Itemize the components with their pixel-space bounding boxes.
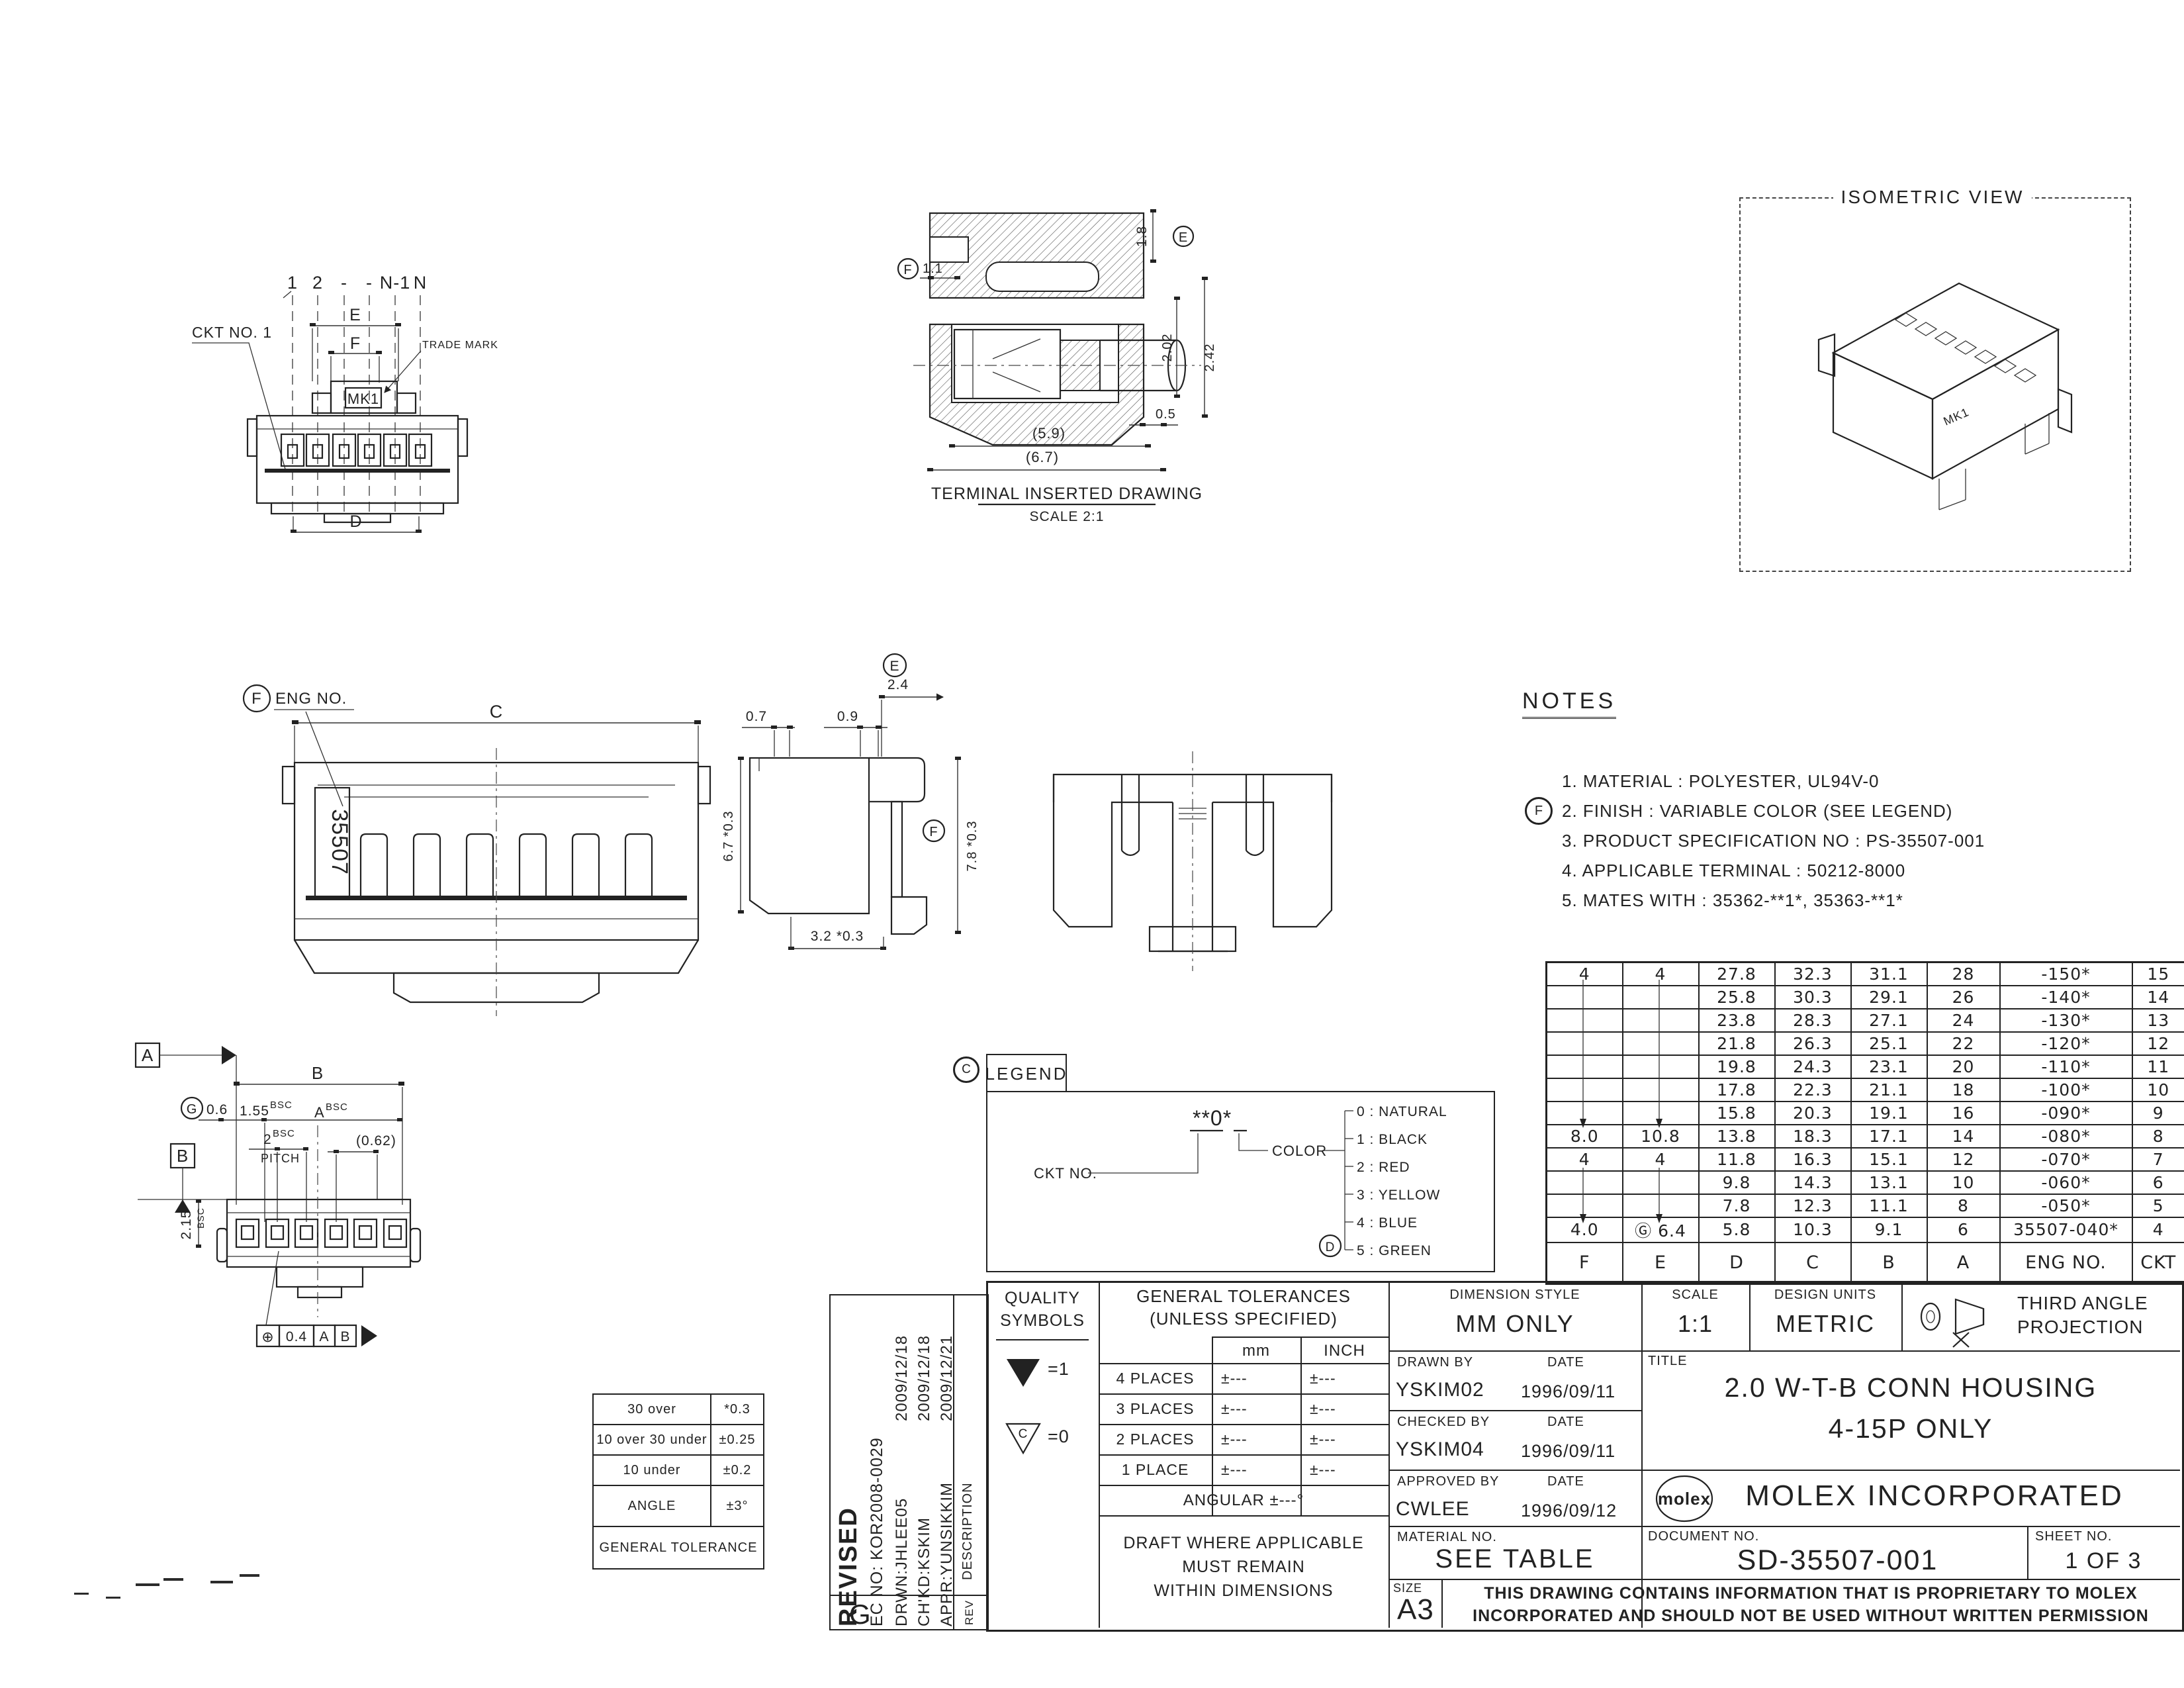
spec-cell: 16.3 (1775, 1148, 1851, 1171)
col-mm: mm (1212, 1342, 1300, 1360)
quality-value-1: =1 (1048, 1359, 1069, 1380)
bsc-label: BSC (326, 1102, 348, 1113)
spec-cell: 26.3 (1775, 1032, 1851, 1055)
dim-0-62: (0.62) (356, 1133, 396, 1149)
spec-row: 4.0Ⓖ 6.45.810.39.1635507-040*4 (1547, 1217, 2184, 1243)
legend-color-label: COLOR (1272, 1143, 1327, 1159)
projection-line2: PROJECTION (2017, 1317, 2143, 1338)
spec-cell: -060* (2000, 1171, 2132, 1194)
spec-cell (1623, 1009, 1699, 1032)
front-body (248, 416, 467, 522)
spec-cell: -150* (2000, 962, 2132, 986)
spec-cell: -100* (2000, 1078, 2132, 1102)
spec-cell (1547, 1171, 1623, 1194)
notes-block: NOTES 1. MATERIAL : POLYESTER, UL94V-0 2… (1522, 688, 2184, 914)
note-item: 5. MATES WITH : 35362-**1*, 35363-**1* (1562, 890, 1903, 911)
legend-color-item: 2 : RED (1357, 1160, 1410, 1175)
design-units-value: METRIC (1749, 1310, 1901, 1338)
spec-cell: 11 (2132, 1055, 2184, 1078)
spec-cell: 18.3 (1775, 1125, 1851, 1148)
tol-mm: ±--- (1221, 1461, 1248, 1479)
spec-cell (1623, 986, 1699, 1009)
spec-cell: 6 (2132, 1171, 2184, 1194)
col-inch: INCH (1300, 1342, 1388, 1360)
draft-note-2: MUST REMAIN (1099, 1558, 1388, 1577)
dim-b: B (312, 1063, 324, 1083)
spec-cell: -140* (2000, 986, 2132, 1009)
tol-places: 1 PLACE (1099, 1461, 1212, 1479)
spec-cell: 11.8 (1699, 1148, 1775, 1171)
spec-cell: 13 (2132, 1009, 2184, 1032)
spec-cell: 22.3 (1775, 1078, 1851, 1102)
projection-line1: THIRD ANGLE (2017, 1293, 2148, 1314)
spec-header-row: F E D C B A ENG NO. CKT (1547, 1243, 2184, 1284)
note-item: 4. APPLICABLE TERMINAL : 50212-8000 (1562, 861, 1905, 881)
spec-cell: 10 (2132, 1078, 2184, 1102)
spec-cell: 13.8 (1699, 1125, 1775, 1148)
spec-cell: 5.8 (1699, 1217, 1775, 1243)
general-tolerance-table: 30 over*0.3 10 over 30 under±0.25 10 und… (592, 1393, 764, 1570)
eng-no-label: ENG NO. (275, 690, 347, 708)
quality-line2: SYMBOLS (986, 1311, 1099, 1331)
ckt-leader (192, 343, 286, 471)
approved-date: 1996/09/12 (1521, 1501, 1617, 1521)
tol-inch: ±--- (1310, 1370, 1336, 1387)
ckt-no-label: CKT NO. 1 (192, 324, 272, 341)
document-no-value: SD-35507-001 (1648, 1544, 2027, 1577)
spec-cell: 15 (2132, 962, 2184, 986)
circuit-label: N (414, 273, 428, 293)
quality-symbol-c-triangle: C (1003, 1420, 1044, 1457)
stray-mark (163, 1578, 183, 1581)
legend-tab: LEGEND (986, 1054, 1067, 1094)
dim-3-2-03: 3.2 *0.3 (811, 929, 864, 944)
balloon-e: E (1179, 230, 1188, 245)
col-e: E (1623, 1243, 1699, 1284)
dim-1-55: 1.55 (240, 1103, 269, 1119)
dim-a: A (314, 1104, 325, 1121)
circuit-label: 2 (312, 273, 323, 293)
legend-ckt-label: CKT NO. (1034, 1165, 1097, 1182)
proprietary-line1: THIS DRAWING CONTAINS INFORMATION THAT I… (1441, 1584, 2180, 1603)
tol-places: 4 PLACES (1099, 1370, 1212, 1387)
revision-date: 2009/12/18 (893, 1335, 911, 1421)
spec-cell: 30.3 (1775, 986, 1851, 1009)
iso-mk1-label: MK1 (1941, 405, 1971, 428)
spec-cell: -070* (2000, 1148, 2132, 1171)
drawn-date: 1996/09/11 (1521, 1382, 1615, 1402)
revision-block: REVISED EC NO: KOR2008-0029 DRWN:JHLEE05… (829, 1294, 989, 1630)
date-label: DATE (1547, 1474, 1584, 1489)
spec-cell: 22 (1927, 1032, 2000, 1055)
datum-a-triangle (222, 1046, 236, 1064)
spec-cell: 20 (1927, 1055, 2000, 1078)
stray-mark (210, 1581, 233, 1583)
proprietary-line2: INCORPORATED AND SHOULD NOT BE USED WITH… (1441, 1607, 2180, 1626)
spec-cell (1547, 1102, 1623, 1125)
material-label: MATERIAL NO. (1397, 1530, 1497, 1545)
spec-cell: 10.8 (1623, 1125, 1699, 1148)
spec-cell: 4 (1623, 962, 1699, 986)
spec-cell: 14.3 (1775, 1171, 1851, 1194)
spec-cell: 8.0 (1547, 1125, 1623, 1148)
spec-row: 23.828.327.124-130*13 (1547, 1009, 2184, 1032)
spec-row: 21.826.325.122-120*12 (1547, 1032, 2184, 1055)
spec-cell: 12 (1927, 1148, 2000, 1171)
checked-date: 1996/09/11 (1521, 1441, 1615, 1462)
drawn-by-label: DRAWN BY (1397, 1355, 1473, 1370)
quality-line1: QUALITY (986, 1289, 1099, 1308)
spec-cell: 6 (1927, 1217, 2000, 1243)
note-item: 1. MATERIAL : POLYESTER, UL94V-0 (1562, 771, 1879, 792)
company-name: MOLEX INCORPORATED (1716, 1479, 2153, 1513)
dim-0-6: 0.6 (206, 1102, 228, 1117)
spec-cell: 15.1 (1851, 1148, 1927, 1171)
spec-cell: 17.1 (1851, 1125, 1927, 1148)
note-item: 3. PRODUCT SPECIFICATION NO : PS-35507-0… (1562, 831, 1985, 851)
spec-cell (1623, 1194, 1699, 1217)
pitch-label: PITCH (261, 1152, 300, 1165)
bottom-view-drawing: A B G 0.6 1.55 BSC A BSC 2 BSC PITCH (0.… (99, 1026, 715, 1364)
dim-2-42: 2.42 (1203, 344, 1217, 372)
legend-diagram: **0* CKT NO. COLOR 0 : NATURAL 1 : BLACK… (987, 1092, 1491, 1268)
dim-2-15: 2.15 (179, 1210, 194, 1240)
tol-places: 2 PLACES (1099, 1430, 1212, 1448)
terminal-scale: SCALE 2:1 (1030, 509, 1105, 524)
section-view-drawing (1049, 712, 1340, 976)
molex-logo-text: molex (1658, 1489, 1711, 1509)
spec-cell: 12.3 (1775, 1194, 1851, 1217)
approved-by-label: APPROVED BY (1397, 1474, 1499, 1489)
tol-inch: ±--- (1310, 1400, 1336, 1418)
spec-cell: 14 (2132, 986, 2184, 1009)
spec-cell: 8 (1927, 1194, 2000, 1217)
stray-mark (240, 1574, 259, 1577)
legend-color-item: 1 : BLACK (1357, 1132, 1428, 1147)
spec-cell: 10.3 (1775, 1217, 1851, 1243)
sheet-no-label: SHEET NO. (2035, 1529, 2112, 1544)
quality-c: C (1019, 1427, 1028, 1441)
drawn-by-value: YSKIM02 (1396, 1379, 1484, 1401)
legend-pattern: **0* (1193, 1106, 1232, 1130)
spec-cell: 24 (1927, 1009, 2000, 1032)
material-value: SEE TABLE (1388, 1544, 1641, 1574)
side-view-drawing: E 2.4 0.7 0.9 6.7 *0.3 7.8 *0.3 F 3.2 *0… (725, 639, 989, 970)
spec-cell: 4 (1623, 1148, 1699, 1171)
circuit-label: - (341, 273, 347, 293)
spec-row: 9.814.313.110-060*6 (1547, 1171, 2184, 1194)
fcf-datum-b: B (340, 1329, 350, 1344)
third-angle-projection-symbol (1915, 1289, 2014, 1347)
drawing-title-line2: 4-15P ONLY (1641, 1413, 2180, 1444)
drawing-sheet: 1 2 - - N-1 N CKT NO. 1 E F TRADE MARK M… (0, 0, 2184, 1688)
spec-cell: 4 (1547, 962, 1623, 986)
spec-cell: 27.1 (1851, 1009, 1927, 1032)
sheet-no-value: 1 OF 3 (2027, 1548, 2180, 1574)
spec-table-body: 4427.832.331.128-150*1525.830.329.126-14… (1547, 962, 2184, 1243)
spec-cell: 29.1 (1851, 986, 1927, 1009)
revision-letter: G (849, 1599, 872, 1630)
dim-e: E (349, 306, 361, 324)
dim-2-4: 2.4 (887, 677, 909, 692)
legend-color-item: 0 : NATURAL (1357, 1104, 1447, 1119)
spec-cell: 13.1 (1851, 1171, 1927, 1194)
spec-cell: -050* (2000, 1194, 2132, 1217)
side-body (750, 758, 927, 934)
circuit-label: - (366, 273, 373, 293)
balloon-c: C (953, 1056, 979, 1083)
balloon-f: F (1525, 797, 1553, 825)
spec-cell: 12 (2132, 1032, 2184, 1055)
balloon-e: E (889, 659, 899, 674)
spec-cell: 7.8 (1699, 1194, 1775, 1217)
spec-cell: 9 (2132, 1102, 2184, 1125)
dimension-style-label: DIMENSION STYLE (1388, 1288, 1641, 1303)
revision-chkd: CH'KD:KSKIM (915, 1517, 934, 1626)
spec-cell: 20.3 (1775, 1102, 1851, 1125)
tol-footer: GENERAL TOLERANCE (593, 1526, 764, 1569)
dim-2-02: 2.02 (1160, 334, 1175, 362)
bsc-label: BSC (273, 1128, 295, 1139)
tol-value: ±3° (711, 1485, 764, 1526)
terminal-caption: TERMINAL INSERTED DRAWING (931, 485, 1203, 503)
tol-places: 3 PLACES (1099, 1400, 1212, 1418)
title-block: REVISED EC NO: KOR2008-0029 DRWN:JHLEE05… (829, 1281, 2182, 1630)
spec-row: 4427.832.331.128-150*15 (1547, 962, 2184, 986)
spec-cell: 4.0 (1547, 1217, 1623, 1243)
spec-cell (1547, 1009, 1623, 1032)
dim-1-8: 1.8 (1134, 226, 1150, 247)
spec-cell: 10 (1927, 1171, 2000, 1194)
bsc-label: BSC (195, 1207, 206, 1229)
spec-cell: 9.1 (1851, 1217, 1927, 1243)
balloon-g: G (187, 1102, 198, 1117)
spec-cell: 23.8 (1699, 1009, 1775, 1032)
balloon-d: D (1326, 1241, 1336, 1254)
col-ckt: CKT (2132, 1243, 2184, 1284)
spec-table: 4427.832.331.128-150*1525.830.329.126-14… (1545, 961, 2184, 1285)
spec-row: 4411.816.315.112-070*7 (1547, 1148, 2184, 1171)
spec-cell: 21.8 (1699, 1032, 1775, 1055)
iso-cavities (1895, 313, 2036, 382)
trade-mark-label: TRADE MARK (422, 340, 498, 351)
checked-by-label: CHECKED BY (1397, 1415, 1490, 1430)
spec-cell (1623, 1171, 1699, 1194)
col-d: D (1699, 1243, 1775, 1284)
description-label: DESCRIPTION (960, 1482, 976, 1580)
datum-b-label: B (177, 1146, 189, 1166)
fcf-datum-a: A (319, 1329, 329, 1344)
spec-cell: 18 (1927, 1078, 2000, 1102)
bsc-label: BSC (270, 1100, 293, 1111)
balloon-f: F (903, 263, 912, 277)
mk1-label: MK1 (347, 391, 379, 407)
spec-cell (1547, 1078, 1623, 1102)
rear-view-drawing: F ENG NO. C 35507 (232, 662, 735, 1023)
col-eng-no: ENG NO. (2000, 1243, 2132, 1284)
col-a: A (1927, 1243, 2000, 1284)
spec-cell: 31.1 (1851, 962, 1927, 986)
tol-value: ±0.25 (711, 1425, 764, 1455)
scale-value: 1:1 (1641, 1310, 1749, 1338)
dim-7-8-03: 7.8 *0.3 (965, 821, 979, 872)
fcf-tolerance: 0.4 (286, 1329, 307, 1344)
isometric-drawing: MK1 (1741, 204, 2128, 561)
balloon-f: F (929, 825, 938, 839)
legend-color-item: 5 : GREEN (1357, 1243, 1432, 1258)
spec-cell (1623, 1055, 1699, 1078)
dim-0-9: 0.9 (837, 709, 858, 724)
spec-cell: 4 (2132, 1217, 2184, 1243)
tol-value: ±0.2 (711, 1455, 764, 1485)
spec-cell (1547, 1032, 1623, 1055)
spec-cell: 26 (1927, 986, 2000, 1009)
spec-cell: 25.8 (1699, 986, 1775, 1009)
revision-appr: APPR:YUNSIKKIM (938, 1482, 956, 1626)
spec-cell (1547, 1055, 1623, 1078)
spec-cell: 4 (1547, 1148, 1623, 1171)
spec-row: 15.820.319.116-090*9 (1547, 1102, 2184, 1125)
approved-by-value: CWLEE (1396, 1498, 1470, 1521)
spec-cell: 35507-040* (2000, 1217, 2132, 1243)
circuit-label: N-1 (380, 273, 411, 293)
spec-cell: 15.8 (1699, 1102, 1775, 1125)
spec-cell: 27.8 (1699, 962, 1775, 986)
spec-row: 19.824.323.120-110*11 (1547, 1055, 2184, 1078)
spec-cell: 19.1 (1851, 1102, 1927, 1125)
spec-cell (1547, 1194, 1623, 1217)
date-label: DATE (1547, 1415, 1584, 1430)
front-view-drawing: 1 2 - - N-1 N CKT NO. 1 E F TRADE MARK M… (185, 252, 477, 538)
dim-f: F (350, 334, 361, 353)
scale-label: SCALE (1641, 1288, 1749, 1303)
spec-cell: 9.8 (1699, 1171, 1775, 1194)
spec-cell (1623, 1032, 1699, 1055)
quality-value-0: =0 (1048, 1427, 1069, 1447)
dim-0-5: 0.5 (1156, 407, 1176, 422)
title-label: TITLE (1648, 1354, 1687, 1369)
col-b: B (1851, 1243, 1927, 1284)
tol-mm: ±--- (1221, 1430, 1248, 1448)
isometric-view-frame: ISOMETRIC VIEW MK1 (1739, 197, 2131, 572)
checked-by-value: YSKIM04 (1396, 1438, 1484, 1461)
col-f: F (1547, 1243, 1623, 1284)
datum-a-label: A (142, 1045, 154, 1065)
spec-cell (1623, 1078, 1699, 1102)
spec-cell: 23.1 (1851, 1055, 1927, 1078)
spec-cell: 11.1 (1851, 1194, 1927, 1217)
spec-cell: 28.3 (1775, 1009, 1851, 1032)
date-label: DATE (1547, 1355, 1584, 1370)
spec-cell (1547, 986, 1623, 1009)
tol-range: 10 under (593, 1455, 711, 1485)
isometric-title: ISOMETRIC VIEW (1833, 187, 2032, 208)
dim-1-1: 1.1 (923, 261, 943, 276)
stray-mark (106, 1597, 120, 1599)
draft-note-3: WITHIN DIMENSIONS (1099, 1581, 1388, 1601)
dim-5-9: (5.9) (1032, 425, 1066, 442)
notes-title: NOTES (1522, 688, 1616, 719)
spec-cell: 21.1 (1851, 1078, 1927, 1102)
legend-box: **0* CKT NO. COLOR 0 : NATURAL 1 : BLACK… (986, 1091, 1495, 1272)
dim-c: C (490, 702, 504, 722)
tol-range: 10 over 30 under (593, 1425, 711, 1455)
position-symbol: ⊕ (261, 1329, 274, 1345)
spec-cell: 8 (2132, 1125, 2184, 1148)
spec-cell: 5 (2132, 1194, 2184, 1217)
molex-logo: molex (1653, 1474, 1716, 1523)
note-item: 2. FINISH : VARIABLE COLOR (SEE LEGEND) (1562, 801, 1952, 821)
legend-color-item: 3 : YELLOW (1357, 1188, 1440, 1203)
gen-tol-title2: (UNLESS SPECIFIED) (1099, 1309, 1388, 1329)
dim-6-7-03: 6.7 *0.3 (721, 811, 736, 862)
spec-cell: 25.1 (1851, 1032, 1927, 1055)
design-units-label: DESIGN UNITS (1749, 1288, 1901, 1303)
spec-cell: 24.3 (1775, 1055, 1851, 1078)
tol-range: ANGLE (593, 1485, 711, 1526)
revision-date: 2009/12/21 (938, 1335, 956, 1421)
rev-label: REV (963, 1600, 976, 1625)
tol-range: 30 over (593, 1394, 711, 1425)
spec-cell: -080* (2000, 1125, 2132, 1148)
spec-cell: -110* (2000, 1055, 2132, 1078)
spec-row: 7.812.311.18-050*5 (1547, 1194, 2184, 1217)
balloon-f: F (251, 690, 262, 708)
spec-cell: 32.3 (1775, 962, 1851, 986)
terminal-section-drawing: 1.8 E F 1.1 2.02 2.42 0.5 (5.9) (6.7) TE… (893, 199, 1231, 530)
stray-mark (136, 1583, 159, 1586)
spec-cell: 14 (1927, 1125, 2000, 1148)
spec-row: 8.010.813.818.317.114-080*8 (1547, 1125, 2184, 1148)
tol-mm: ±--- (1221, 1370, 1248, 1387)
circuit-label: 1 (287, 273, 298, 293)
dim-d: D (349, 512, 362, 531)
legend-color-item: 4 : BLUE (1357, 1215, 1418, 1231)
part-number-marking: 35507 (327, 809, 352, 875)
spec-cell (1623, 1102, 1699, 1125)
col-c: C (1775, 1243, 1851, 1284)
bottom-body (217, 1125, 420, 1317)
dim-0-7: 0.7 (746, 709, 767, 724)
document-no-label: DOCUMENT NO. (1648, 1529, 1759, 1544)
tol-value: *0.3 (711, 1394, 764, 1425)
spec-row: 17.822.321.118-100*10 (1547, 1078, 2184, 1102)
stray-mark (74, 1593, 89, 1595)
dimension-style-value: MM ONLY (1388, 1310, 1641, 1338)
spec-cell: 19.8 (1699, 1055, 1775, 1078)
spec-cell: 28 (1927, 962, 2000, 986)
quality-symbol-filled-triangle (1003, 1355, 1044, 1389)
tol-inch: ±--- (1310, 1461, 1336, 1479)
spec-cell: -120* (2000, 1032, 2132, 1055)
revision-drwn: DRWN:JHLEE05 (893, 1498, 911, 1626)
dim-6-7: (6.7) (1026, 449, 1059, 465)
drawing-title-line1: 2.0 W-T-B CONN HOUSING (1641, 1372, 2180, 1403)
spec-cell: 7 (2132, 1148, 2184, 1171)
gen-tol-title1: GENERAL TOLERANCES (1099, 1286, 1388, 1307)
size-value: A3 (1397, 1593, 1434, 1626)
spec-cell: Ⓖ 6.4 (1623, 1217, 1699, 1243)
spec-cell: 16 (1927, 1102, 2000, 1125)
spec-row: 25.830.329.126-140*14 (1547, 986, 2184, 1009)
tol-mm: ±--- (1221, 1400, 1248, 1418)
dim-2: 2 (263, 1132, 272, 1147)
spec-cell: 17.8 (1699, 1078, 1775, 1102)
angular-tolerance: ANGULAR ±---° (1099, 1491, 1388, 1510)
spec-cell: -130* (2000, 1009, 2132, 1032)
feature-control-frame: ⊕ 0.4 A B (257, 1325, 377, 1346)
spec-cell: -090* (2000, 1102, 2132, 1125)
